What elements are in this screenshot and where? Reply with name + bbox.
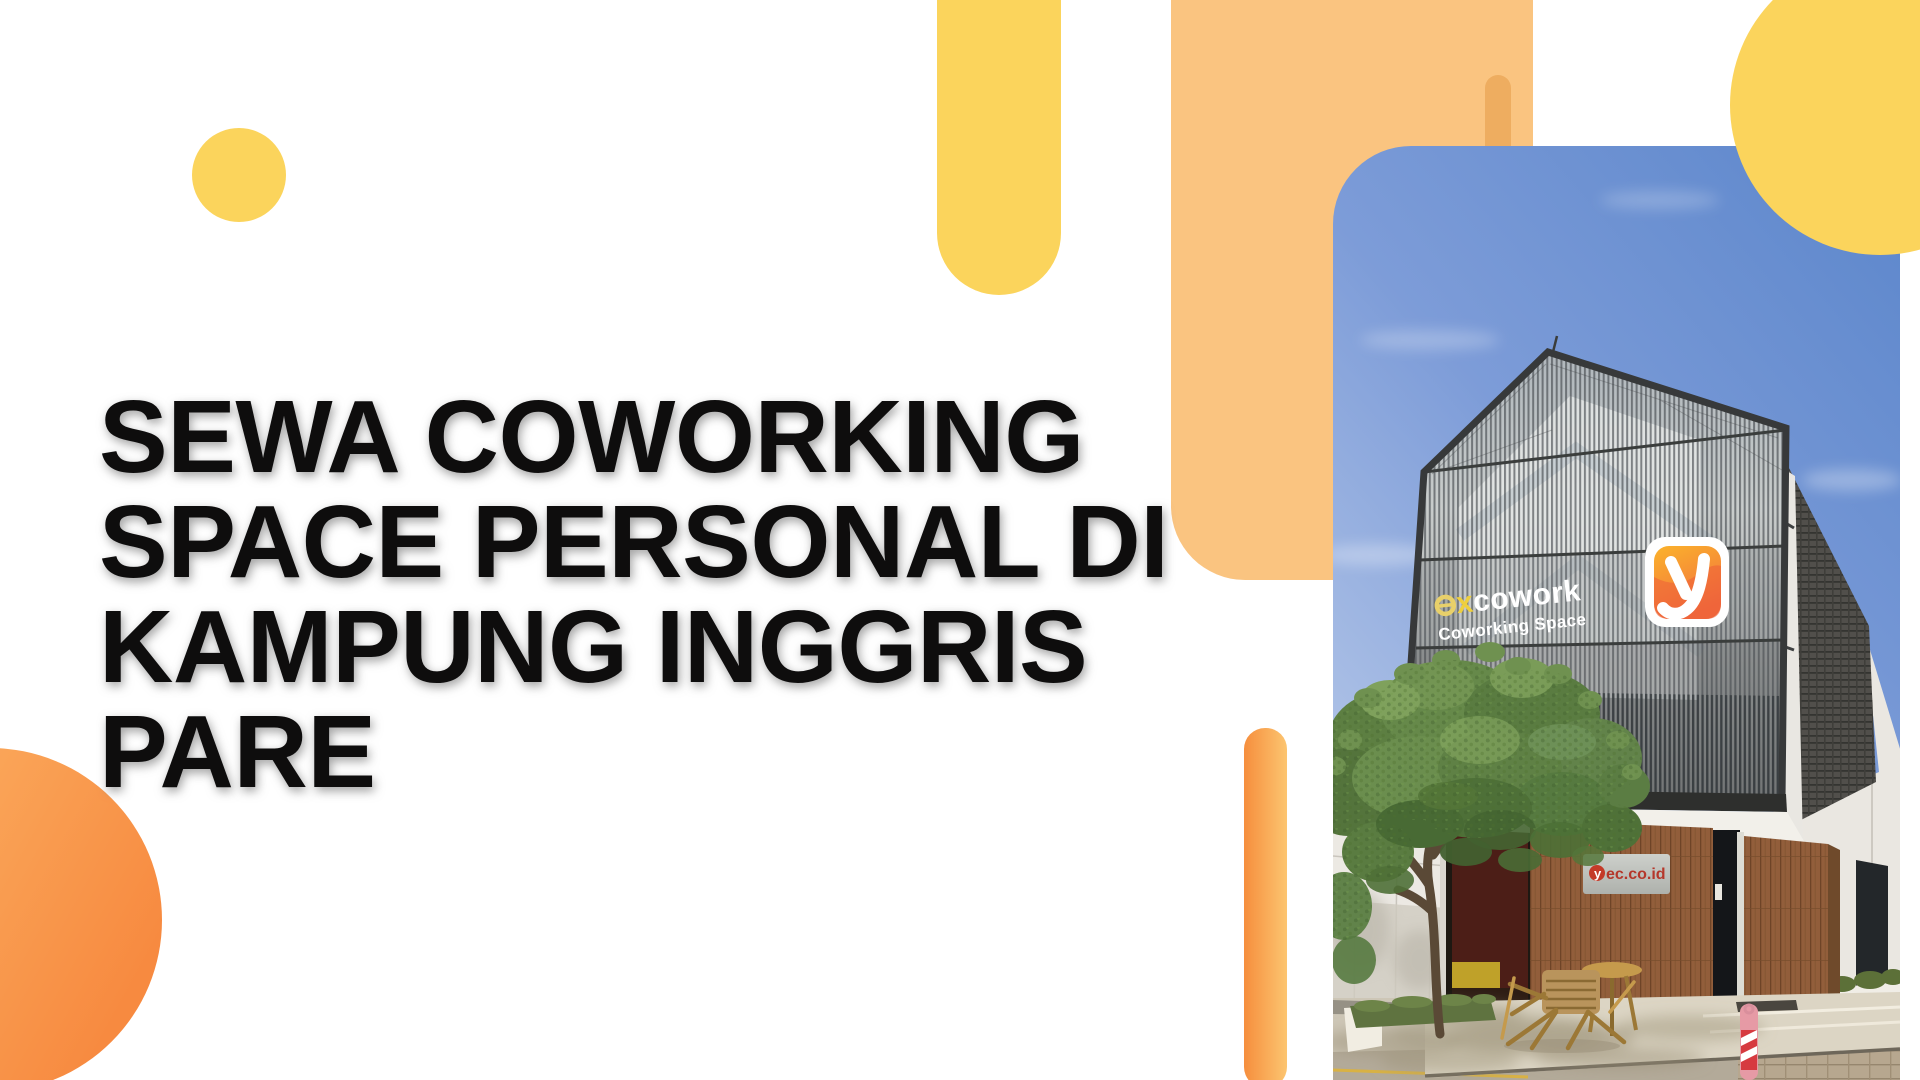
svg-text:ec.co.id: ec.co.id — [1606, 866, 1666, 883]
svg-text:y: y — [1594, 866, 1602, 881]
